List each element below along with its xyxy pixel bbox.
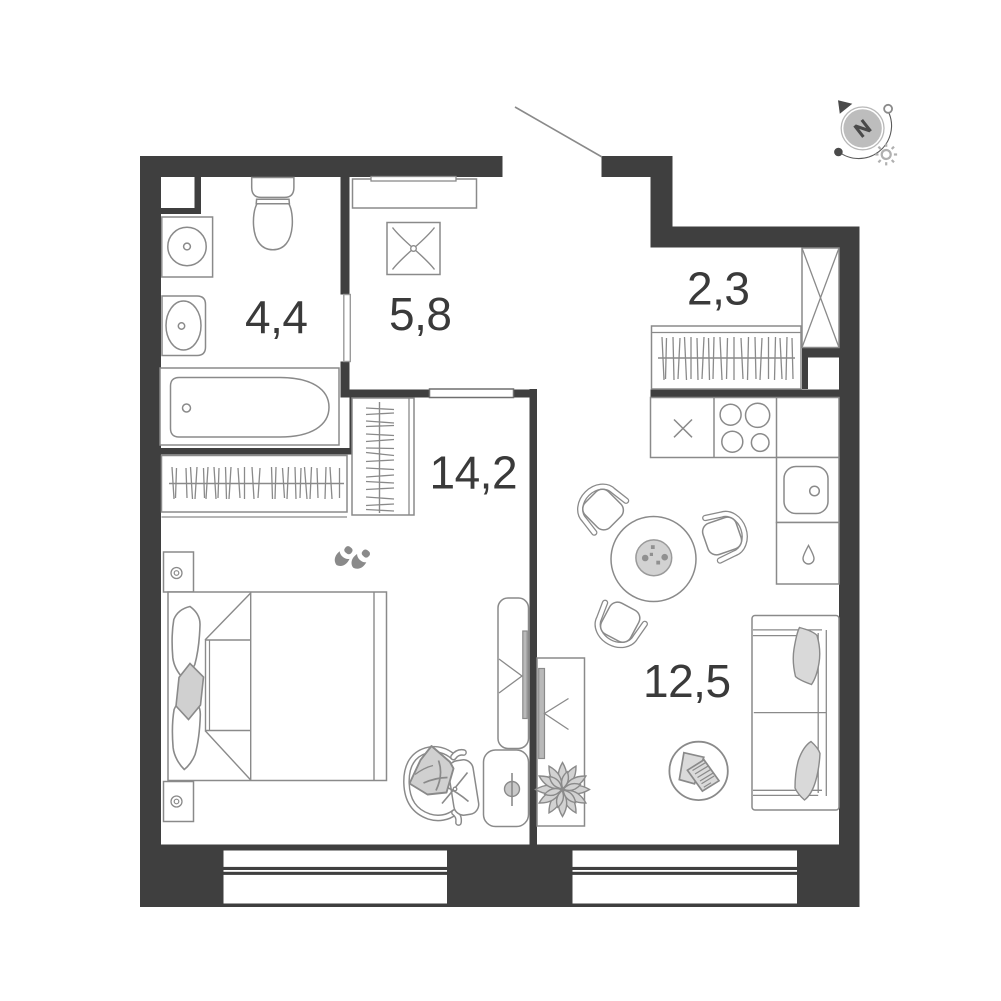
svg-text:12,5: 12,5: [643, 655, 731, 707]
svg-text:2,3: 2,3: [687, 263, 749, 315]
svg-text:5,8: 5,8: [389, 288, 451, 340]
svg-text:14,2: 14,2: [430, 447, 518, 499]
svg-text:4,4: 4,4: [245, 291, 307, 343]
